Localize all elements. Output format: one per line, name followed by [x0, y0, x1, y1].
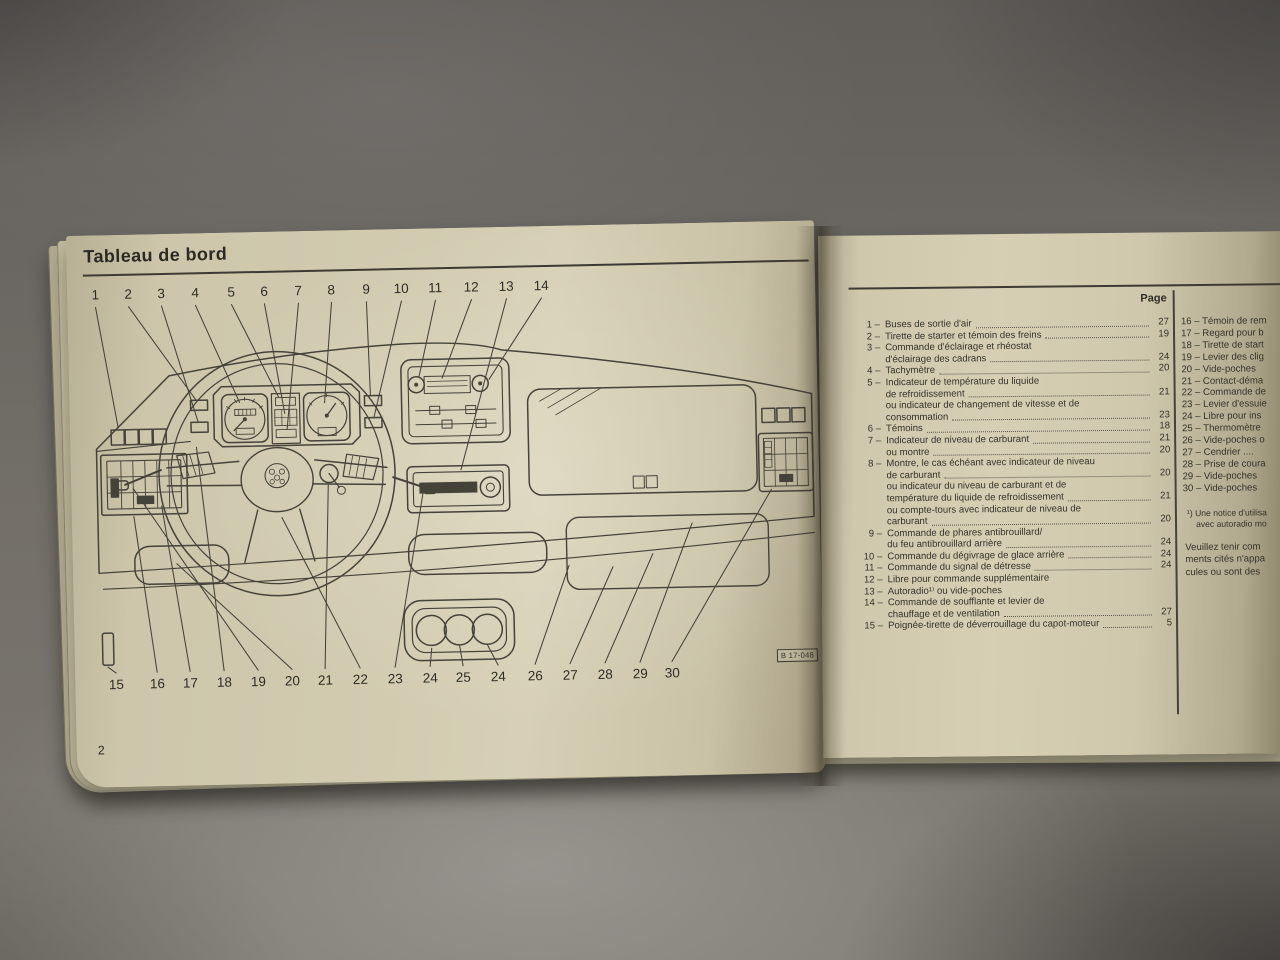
- toc-item-number: 12 –: [858, 574, 883, 586]
- toc-right-item: 20 – Vide-poches: [1181, 363, 1280, 376]
- toc-item-text: Commande de soufflante et levier de: [888, 596, 1045, 609]
- footnote-line: avec autoradio mo: [1187, 518, 1280, 530]
- toc-item-number: 1 –: [855, 319, 880, 331]
- toc-page-number: 20: [1153, 363, 1169, 375]
- callout-number: 19: [245, 674, 271, 690]
- toc-right-item: 24 – Libre pour ins: [1182, 410, 1280, 423]
- toc-item-number: 6 –: [856, 424, 881, 436]
- callout-number: 15: [103, 677, 129, 693]
- callout-number: 20: [279, 673, 305, 689]
- toc-page-number: 20: [1154, 444, 1170, 456]
- toc-item-lines: Commande d'éclairage et rhéostatd'éclair…: [885, 340, 1169, 366]
- toc-right-item: 22 – Commande de: [1182, 387, 1280, 400]
- toc-item-number: 2 –: [855, 331, 880, 343]
- toc-right-item: 17 – Regard pour b: [1181, 327, 1280, 340]
- toc-item: 8 –Montre, le cas échéant avec indicateu…: [856, 455, 1171, 528]
- toc-item-lines: Montre, le cas échéant avec indicateur d…: [886, 455, 1171, 528]
- toc-item: 15 –Poignée-tirette de déverrouillage du…: [858, 618, 1172, 633]
- toc-item-number: 4 –: [855, 366, 880, 378]
- toc-right-item: 23 – Levier d'essuie: [1182, 398, 1280, 411]
- toc-item-text: Tachymètre: [885, 365, 935, 377]
- callout-number: 28: [592, 667, 618, 683]
- toc-item-text: Indicateur de température du liquide: [885, 376, 1039, 389]
- callout-number: 2: [115, 286, 141, 302]
- callout-number: 3: [148, 286, 174, 302]
- toc-right-item: 28 – Prise de coura: [1182, 458, 1280, 471]
- toc-page-number: 23: [1154, 409, 1170, 421]
- toc-page-number: 24: [1155, 537, 1171, 549]
- section-rule: [849, 283, 1280, 290]
- toc-item-lines: Indicateur de niveau de carburant21ou mo…: [886, 432, 1170, 458]
- toc-item-text: de refroidissement: [886, 388, 965, 400]
- callout-number: 22: [347, 672, 373, 688]
- toc-item-number: 13 –: [858, 586, 883, 598]
- callout-number: 21: [312, 672, 338, 688]
- dot-leader: [1046, 337, 1150, 339]
- toc-item-number: 3 –: [855, 343, 880, 366]
- toc-page-number: 18: [1154, 421, 1170, 433]
- callout-number: 30: [659, 665, 685, 681]
- toc-right-item: 26 – Vide-poches o: [1182, 434, 1280, 447]
- callout-number: 24: [417, 670, 443, 686]
- toc-item-text: Indicateur de niveau de carburant: [886, 434, 1029, 447]
- page-number: 2: [98, 743, 105, 757]
- toc-page-number: 27: [1156, 606, 1172, 618]
- dot-leader: [1103, 627, 1152, 629]
- dot-leader: [1004, 615, 1152, 618]
- toc-item-text: ou indicateur de changement de vitesse e…: [886, 398, 1080, 412]
- toc-right-item: 19 – Levier des clig: [1181, 351, 1280, 364]
- callout-number: 5: [218, 284, 244, 300]
- toc-page-number: 20: [1154, 467, 1170, 479]
- toc-page-number: 24: [1153, 351, 1169, 363]
- toc-item-number: 7 –: [856, 435, 881, 458]
- callout-number: 26: [522, 668, 548, 684]
- toc-page-number: 27: [1153, 316, 1169, 328]
- toc-item-lines: Commande de soufflante et levier dechauf…: [888, 595, 1172, 621]
- toc-item-number: 9 –: [857, 528, 882, 551]
- toc-item-text: carburant: [887, 516, 928, 528]
- toc-line: Poignée-tirette de déverrouillage du cap…: [888, 618, 1172, 633]
- figure-code-label: B 17-048: [777, 648, 818, 662]
- note-line: Veuillez tenir com: [1185, 541, 1280, 554]
- toc-item-text: de carburant: [886, 469, 940, 481]
- toc-item: 7 –Indicateur de niveau de carburant21ou…: [856, 432, 1170, 458]
- right-page: Page 1 –Buses de sortie d'air272 –Tirett…: [818, 231, 1280, 758]
- callout-number: 11: [422, 280, 448, 296]
- footnote-line: ¹) Une notice d'utilisa: [1187, 507, 1280, 519]
- toc-right-item: 18 – Tirette de start: [1181, 339, 1280, 352]
- callout-number: 1: [82, 287, 108, 303]
- toc-item-number: 15 –: [858, 621, 883, 633]
- toc-page-number: 5: [1156, 618, 1172, 630]
- callout-number: 6: [251, 284, 277, 300]
- note-paragraph: Veuillez tenir comments cités n'appacule…: [1185, 541, 1280, 579]
- toc-right-column: 16 – Témoin de rem17 – Regard pour b18 –…: [1181, 315, 1280, 495]
- toc-list: 1 –Buses de sortie d'air272 –Tirette de …: [855, 316, 1172, 632]
- page-column-header: Page: [1107, 292, 1167, 305]
- toc-right-item: 27 – Cendrier ....: [1182, 446, 1280, 459]
- toc-item-text: Commande d'éclairage et rhéostat: [885, 341, 1031, 354]
- toc-item-text: ou montre: [886, 446, 929, 458]
- callout-number: 18: [211, 675, 237, 691]
- toc-item-text: Montre, le cas échéant avec indicateur d…: [886, 456, 1095, 470]
- open-manual-book: Tableau de bord: [0, 0, 1280, 960]
- callout-number: 25: [450, 670, 476, 686]
- toc-right-item: 25 – Thermomètre: [1182, 422, 1280, 435]
- toc-page-number: 21: [1154, 432, 1170, 444]
- callout-number: 29: [627, 666, 653, 682]
- toc-page-number: 21: [1155, 490, 1171, 502]
- toc-page-number: 21: [1154, 386, 1170, 398]
- toc-item-number: 11 –: [857, 563, 882, 575]
- callout-number: 27: [557, 667, 583, 683]
- toc-page-number: 19: [1153, 328, 1169, 340]
- toc-item-number: 14 –: [858, 598, 883, 621]
- toc-right-item: 16 – Témoin de rem: [1181, 315, 1280, 328]
- toc-right-item: 29 – Vide-poches: [1182, 470, 1280, 483]
- dashboard-diagram: [66, 220, 825, 788]
- dot-leader: [1068, 499, 1151, 501]
- toc-item-text: consommation: [886, 411, 949, 423]
- toc-item-lines: Indicateur de température du liquidede r…: [885, 374, 1169, 423]
- toc-item-text: Buses de sortie d'air: [885, 318, 972, 331]
- dot-leader: [1033, 441, 1150, 443]
- toc-item-lines: Poignée-tirette de déverrouillage du cap…: [888, 618, 1172, 633]
- toc-item-text: Commande de phares antibrouillard/: [887, 526, 1042, 539]
- callout-number: 8: [318, 282, 344, 298]
- toc-page-number: 20: [1155, 513, 1171, 525]
- callout-number: 7: [285, 283, 311, 299]
- callout-number: 14: [528, 278, 554, 294]
- dot-leader: [1035, 569, 1152, 571]
- toc-item: 5 –Indicateur de température du liquided…: [855, 374, 1169, 424]
- callout-number: 17: [177, 675, 203, 691]
- callout-number: 23: [382, 671, 408, 687]
- toc-item-number: 5 –: [855, 377, 880, 424]
- toc-item-text: d'éclairage des cadrans: [885, 353, 986, 366]
- dot-leader: [1068, 557, 1151, 559]
- footnote: ¹) Une notice d'utilisaavec autoradio mo: [1187, 507, 1280, 530]
- toc-right-item: 21 – Contact-déma: [1181, 375, 1280, 388]
- toc-item: 9 –Commande de phares antibrouillard/du …: [857, 525, 1171, 551]
- toc-item-text: ou compte-tours avec indicateur de nivea…: [887, 503, 1081, 517]
- note-line: ments cités n'appa: [1185, 554, 1280, 567]
- dot-leader: [1006, 545, 1151, 548]
- toc-item-lines: Commande de phares antibrouillard/du feu…: [887, 525, 1171, 551]
- callout-number: 10: [388, 281, 414, 297]
- note-line: cules ou sont des: [1185, 566, 1280, 579]
- callout-number: 13: [493, 279, 519, 295]
- callout-number: 12: [458, 279, 484, 295]
- toc-item: 14 –Commande de soufflante et levier dec…: [858, 595, 1172, 621]
- callout-number: 4: [182, 285, 208, 301]
- toc-page-number: 24: [1155, 548, 1171, 560]
- toc-item-number: 10 –: [857, 551, 882, 563]
- callout-number: 24: [485, 669, 511, 685]
- callout-number: 16: [144, 676, 170, 692]
- toc-item-text: Témoins: [886, 423, 923, 435]
- toc-right-item: 30 – Vide-poches: [1183, 482, 1280, 495]
- toc-item-text: Poignée-tirette de déverrouillage du cap…: [888, 619, 1099, 633]
- toc-item: 3 –Commande d'éclairage et rhéostatd'écl…: [855, 340, 1169, 366]
- toc-column-divider: [1173, 290, 1179, 714]
- left-page: Tableau de bord: [66, 220, 825, 788]
- callout-number: 9: [353, 281, 379, 297]
- toc-item-number: 8 –: [856, 458, 882, 528]
- toc-page-number: 24: [1155, 560, 1171, 572]
